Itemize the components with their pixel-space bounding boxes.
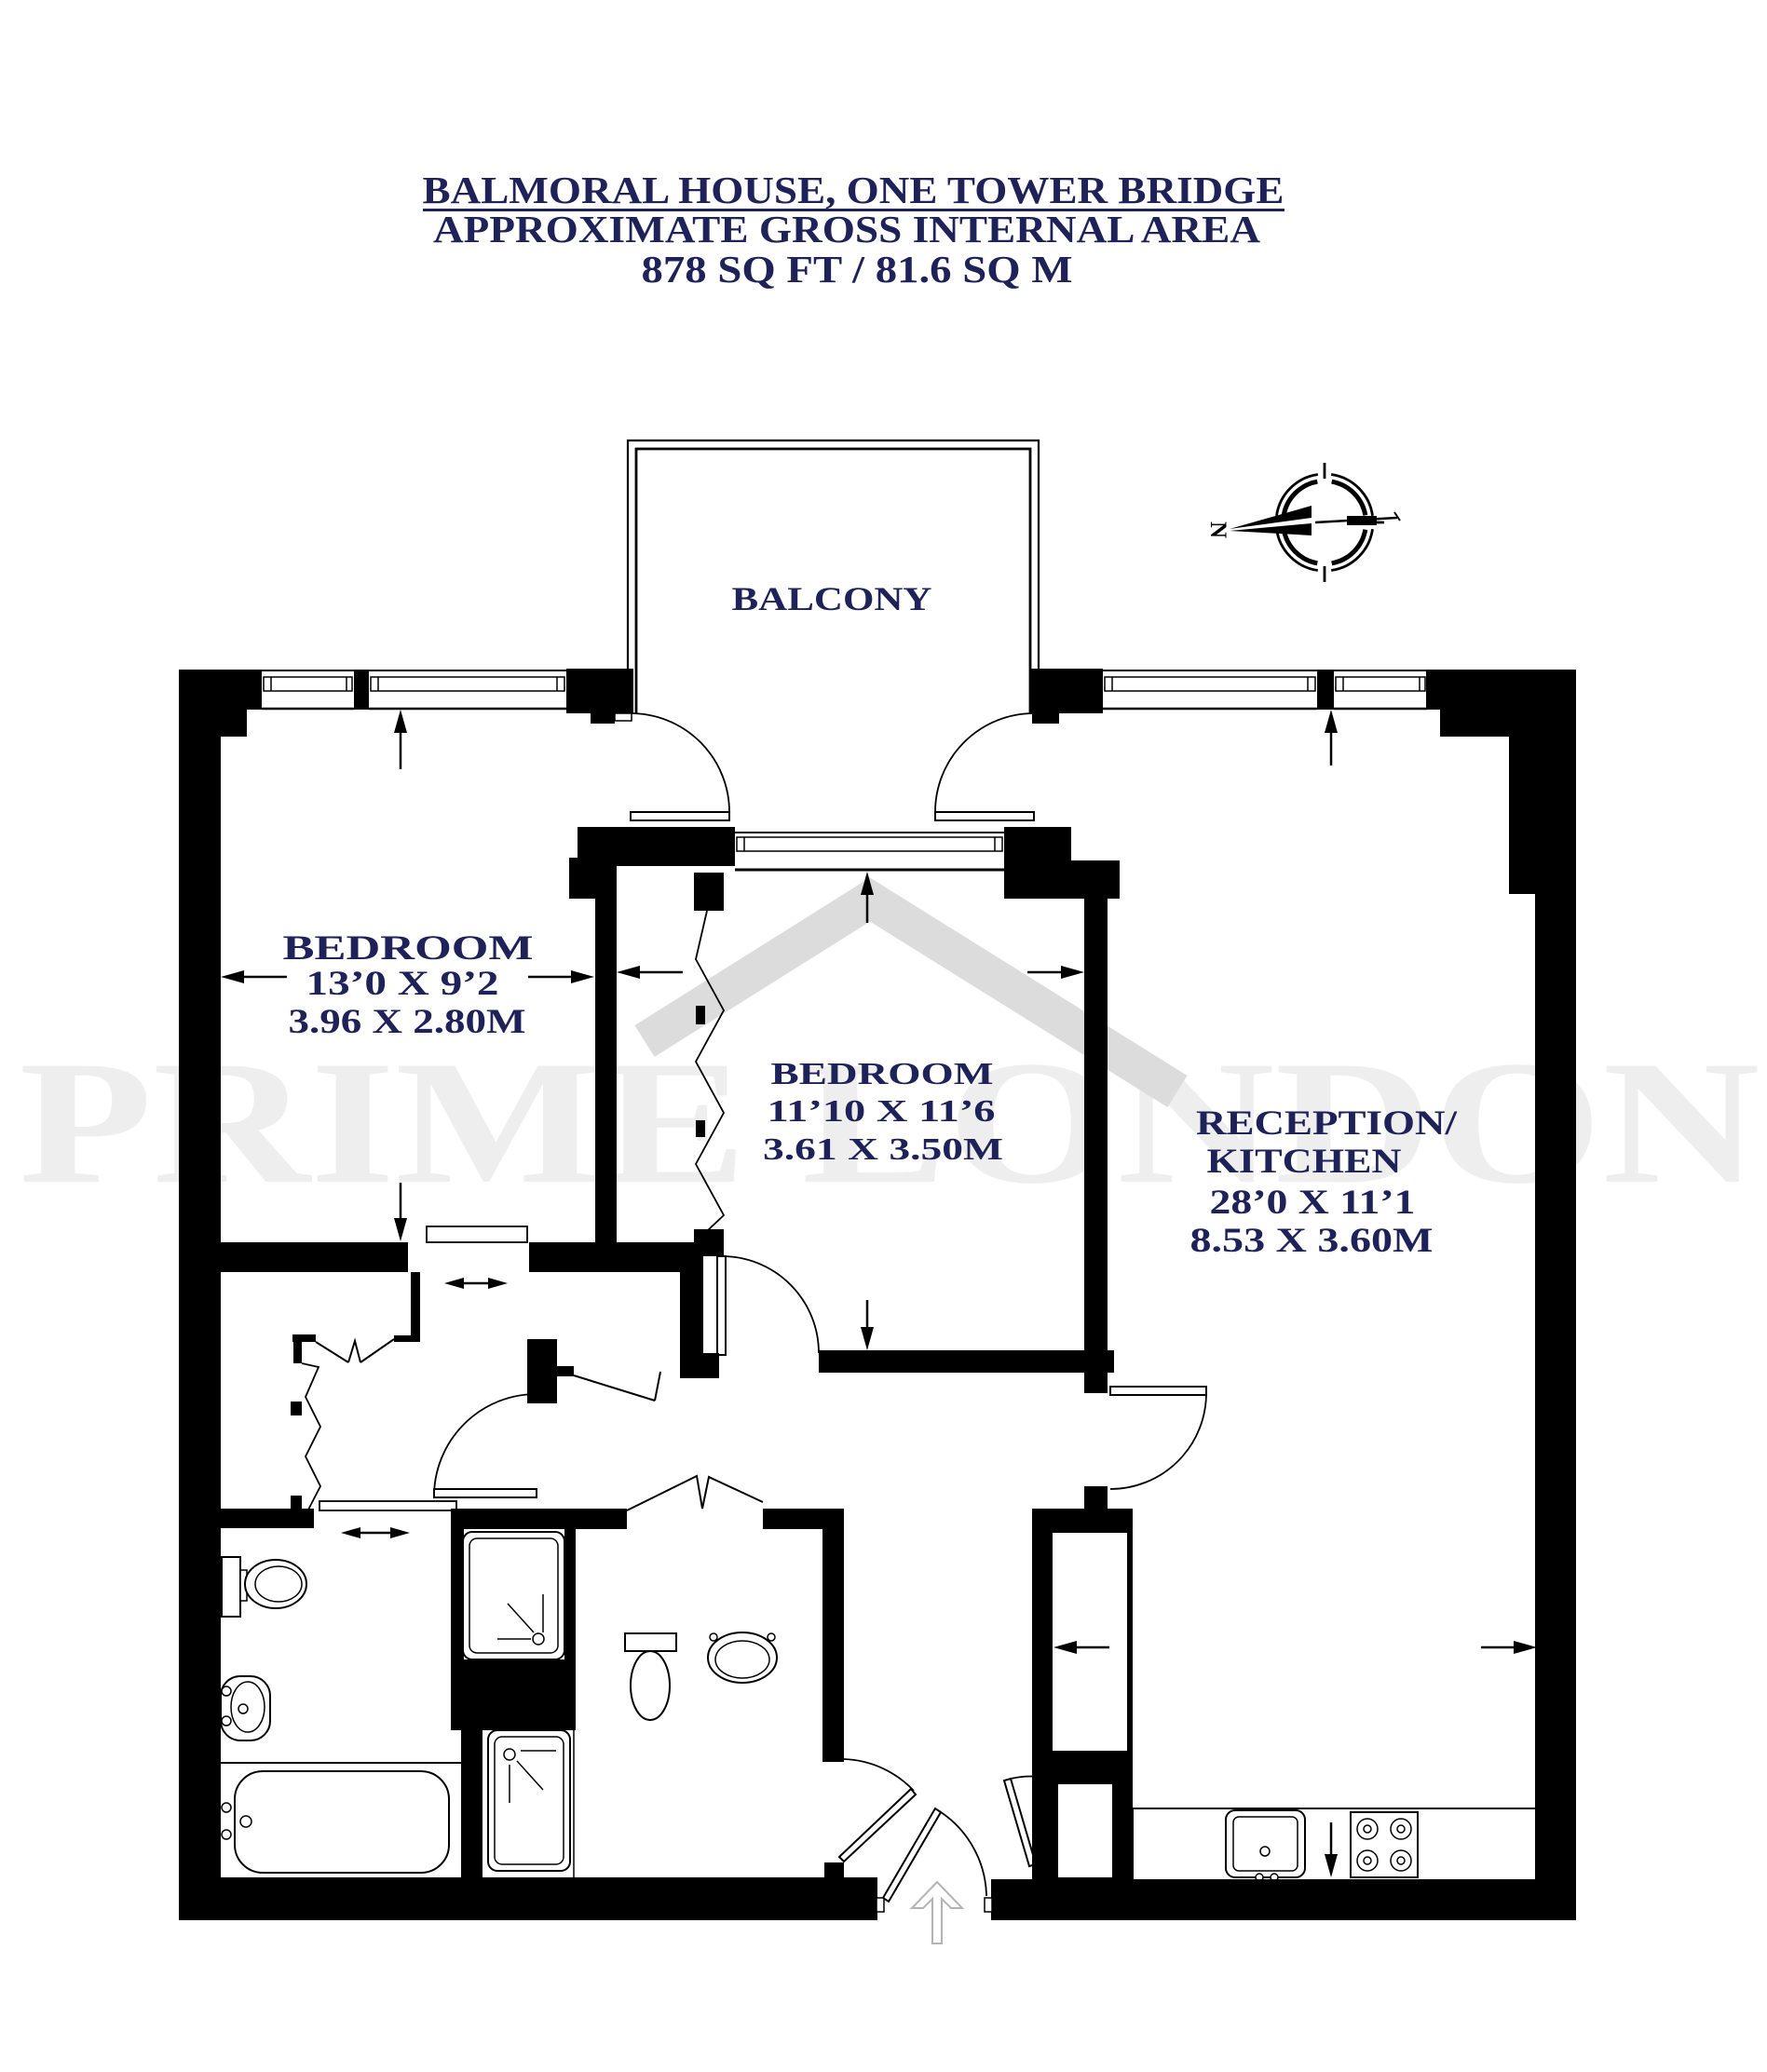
svg-text:8.53 X 3.60M: 8.53 X 3.60M (1190, 1222, 1434, 1260)
svg-text:BALMORAL HOUSE, ONE TOWER BRID: BALMORAL HOUSE, ONE TOWER BRIDGE (423, 169, 1284, 211)
svg-text:KITCHEN: KITCHEN (1207, 1143, 1402, 1181)
svg-text:RECEPTION/: RECEPTION/ (1196, 1104, 1458, 1143)
svg-text:BEDROOM: BEDROOM (283, 929, 534, 968)
svg-text:N: N (1205, 521, 1230, 538)
svg-text:878 SQ FT / 81.6 SQ M: 878 SQ FT / 81.6 SQ M (642, 248, 1073, 291)
svg-text:BALCONY: BALCONY (732, 580, 932, 617)
svg-text:28’0 X 11’1: 28’0 X 11’1 (1210, 1184, 1416, 1222)
svg-text:11’10 X 11’6: 11’10 X 11’6 (768, 1094, 996, 1129)
svg-text:APPROXIMATE GROSS INTERNAL ARE: APPROXIMATE GROSS INTERNAL AREA (433, 208, 1260, 251)
svg-text:13’0 X 9’2: 13’0 X 9’2 (306, 965, 499, 1003)
svg-text:3.61 X 3.50M: 3.61 X 3.50M (763, 1132, 1003, 1167)
svg-text:3.96 X 2.80M: 3.96 X 2.80M (289, 1003, 526, 1041)
svg-text:BEDROOM: BEDROOM (771, 1057, 994, 1091)
